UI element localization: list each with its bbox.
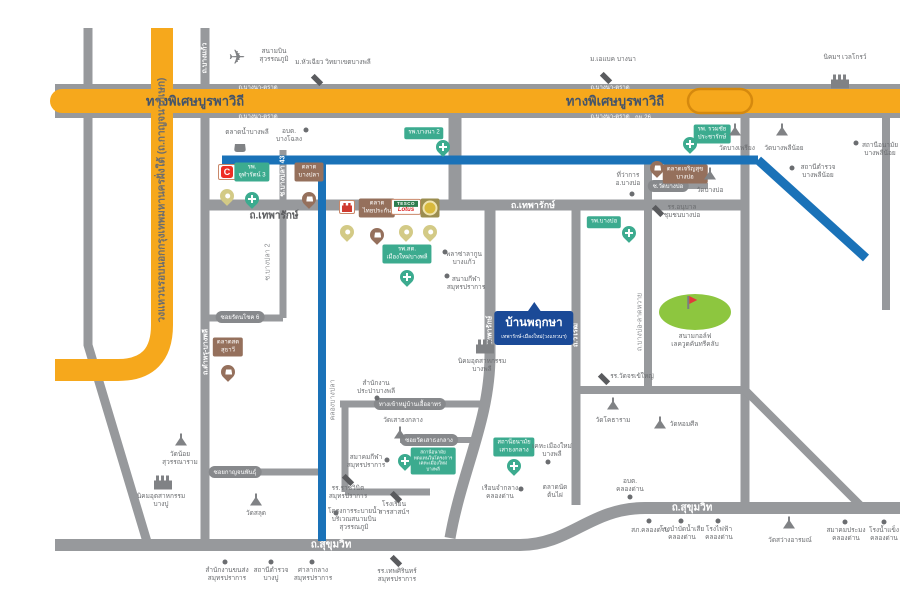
ice-factory-label: โรงน้ำแข็ง คลองด่าน xyxy=(869,527,899,543)
anuban-bangbo-label: รร.อนุบาล ชุมชนบางบ่อ xyxy=(664,204,701,220)
fishery-assoc-label: สมาคมประมง คลองด่าน xyxy=(826,527,865,543)
thepsirin-school-label: รร.เทพศิรินทร์ สมุทรปราการ xyxy=(377,568,416,584)
bangbo-hospital-sign: รพ.บางบ่อ xyxy=(587,216,621,228)
obt-bangchalong-label: อบต. บางโฉลง xyxy=(276,128,302,144)
ring-road-label: วงแหวนรอบนอกกรุงเทพมหานครฝั่งใต้ (ถ.กาญจ… xyxy=(155,78,170,323)
gold-emblem-sign xyxy=(421,199,440,218)
suthawi-market-sign: ตลาดสด สุธาวี xyxy=(213,338,243,357)
rachwinit-school-label: รร.ราชวินิต สมุทรปราการ xyxy=(329,485,367,501)
sarasas-school-label: โรงเรียน สารสาสน์ฯ xyxy=(379,501,410,517)
wat-bangbo-label: วัดบางบ่อ xyxy=(697,187,724,195)
poi-dot xyxy=(679,519,684,524)
basket-icon xyxy=(374,233,381,238)
obt-khlongdan-label: อบต. คลองด่าน xyxy=(616,478,644,494)
thepharak-label-dark: ถ.เทพารักษ์ xyxy=(249,209,298,224)
floating-market-label: ตลาดน้ำบางพลี xyxy=(225,129,268,137)
temple-icon xyxy=(776,124,788,137)
temple-icon xyxy=(704,168,716,181)
prison-label: เรือนจำกลาง คลองด่าน xyxy=(482,485,518,501)
wat-salut-label: วัดสลุด xyxy=(246,510,266,518)
police-bangpu-label: สถานีตำรวจ บางปู xyxy=(254,567,289,583)
tesco-logo: TESCO xyxy=(394,201,418,207)
kheha-muangmai-label: เคหะเมืองใหม่ บางพลี xyxy=(532,443,572,459)
factory-icon xyxy=(154,481,172,490)
temple-icon xyxy=(394,427,406,440)
rpst-muangmai-sign: รพ.สต. เมืองใหม่บางพลี xyxy=(382,245,431,264)
bangkaeo-road-label: ถ.บางแก้ว xyxy=(200,43,211,74)
soi-bangpla43-label: ซ.บางปลา 43 xyxy=(278,156,289,197)
bangna-trat-label: ถ.บางนา-ตราด xyxy=(238,111,277,121)
cross-icon xyxy=(439,143,447,151)
wat-bangphlinoi-label: วัดบางพลีน้อย xyxy=(764,145,803,153)
temple-icon xyxy=(250,494,262,507)
project-title: บ้านพฤกษา xyxy=(501,314,566,332)
city-hall-label: ศาลากลาง สมุทรปราการ xyxy=(294,567,332,583)
cross-icon xyxy=(401,457,409,465)
cross-icon xyxy=(248,195,256,203)
poi-dot xyxy=(269,560,274,565)
wellgrow-estate-label: นิคมฯ เวลโกรว์ xyxy=(824,54,867,62)
basket-icon xyxy=(225,370,232,375)
dot-icon xyxy=(345,230,350,235)
ring-road-kanchanaphisek xyxy=(55,28,162,370)
airplane-icon: ✈ xyxy=(229,45,246,69)
school-chorakhe-label: รร.วัดจรเข้ใหญ่ xyxy=(610,373,654,381)
charoensuk-market-sign: ตลาดเจริญสุข บางบ่อ xyxy=(663,165,708,184)
sukhumvit-label-west: ถ.สุขุมวิท xyxy=(311,538,352,553)
poi-dot xyxy=(716,519,721,524)
bangna2-hospital-sign: รพ.บางนา 2 xyxy=(404,127,443,139)
ruamchai-hospital-sign: รพ. รวมชัย ประชารักษ์ xyxy=(694,125,731,144)
project-callout: บ้านพฤกษา เทพารักษ์-เมืองใหม่(วงแหวนฯ) xyxy=(494,311,573,345)
wat-noi-label: วัดน้อย สุวรรณาราม xyxy=(162,451,198,467)
cross-icon xyxy=(403,273,411,281)
dot-icon xyxy=(404,230,409,235)
bangna-trat-label: ถ.บางนา-ตราด xyxy=(590,82,629,92)
cross-icon xyxy=(625,229,633,237)
abac-bangna-label: ม.เอแบค บางนา xyxy=(590,56,636,64)
anamai-bangphlinoi-label: สถานีอนามัย บางพลีน้อย xyxy=(862,142,898,158)
poi-dot xyxy=(223,560,228,565)
road-network xyxy=(0,0,900,600)
soi-rattanachok-pill: ซอยรัตนโชค 6 xyxy=(216,311,265,323)
thaiprakan-market-sign: ตลาด ไทยประกัน xyxy=(359,199,395,218)
poi-dot xyxy=(882,520,887,525)
taladnat-label: ตลาดนัด ต้นไผ่ xyxy=(543,484,568,500)
poi-dot xyxy=(647,519,652,524)
dot-icon xyxy=(225,194,230,199)
poi-dot xyxy=(630,192,635,197)
wastewater-label: โรงบำบัดน้ำเสีย คลองด่าน xyxy=(660,526,704,542)
drainage-project-label: โครงการระบายน้ำ บริเวณสนามบิน สุวรรณภูมิ xyxy=(328,508,380,532)
dot-icon xyxy=(428,230,433,235)
plaza-lagoon-label: พลาซ่าลากูน บางแก้ว xyxy=(446,251,482,267)
shrine-logo-sign xyxy=(339,200,355,214)
poi-dot xyxy=(546,460,551,465)
soi-saothongklang-pill: ซอยวัดเสาธงกลาง xyxy=(400,434,458,446)
wat-bangphriang-label: วัดบางเพรียง xyxy=(719,145,755,153)
wat-khotharam-label: วัดโคธาราม xyxy=(596,417,631,425)
poi-dot xyxy=(790,166,795,171)
poi-dot xyxy=(385,458,390,463)
poi-dot xyxy=(843,520,848,525)
waterworks-label: สำนักงาน ประปาบางพลี xyxy=(357,380,395,396)
nikhom-bangpu-label: นิคมอุตสาหกรรม บางปู xyxy=(137,493,185,509)
temple-icon xyxy=(783,517,795,530)
suvarnabhumi-airport-label: สนามบิน สุวรรณภูมิ xyxy=(259,48,288,64)
transport-office-label: สำนักงานขนส่ง สมุทรปราการ xyxy=(205,567,248,583)
big-c-logo: C xyxy=(221,166,233,178)
basket-icon xyxy=(306,197,313,202)
bangpla-market-sign: ตลาด บางปลา xyxy=(295,163,324,182)
factory-icon xyxy=(476,345,494,354)
poi-dot xyxy=(310,560,315,565)
sukhumvit-label-east: ถ.สุขุมวิท xyxy=(672,501,713,516)
anamai-kheha-sign: สถานีอนามัย ทดแทนในโครงการ เคหะเมืองใหม่… xyxy=(411,448,456,475)
police-bangphlinoi-label: สถานีตำรวจ บางพลีน้อย xyxy=(801,164,836,180)
khlong-bangpla-label: คลองบางปลา xyxy=(328,379,339,420)
poi-dot xyxy=(519,487,524,492)
thepharak-label-white: ถ.เทพารักษ์ xyxy=(511,198,555,212)
tesco-lotus-sign: TESCO Lotus xyxy=(391,199,421,215)
nikhom-bangphli-label: นิคมอุตสาหกรรม บางพลี xyxy=(458,358,506,374)
tamru-road-label: ถ.ตำหรุ-บางพลี xyxy=(201,329,212,375)
cross-icon xyxy=(510,462,518,470)
golf-flag-icon xyxy=(687,296,689,309)
bangna-trat-label: ถ.บางนา-ตราด xyxy=(238,82,277,92)
amphoe-bangbo-label: ที่ว่าการ อ.บางบ่อ xyxy=(616,172,641,188)
temple-icon xyxy=(175,434,187,447)
temple-icon xyxy=(654,417,666,430)
sports-assoc-label: สมาคมกีฬา สมุทรปราการ xyxy=(347,454,385,470)
soi-bangpla2-label: ซ.บางปลา 2 xyxy=(263,244,274,281)
anamai-saothongklang-sign: สถานีอนามัย เสาธงกลาง xyxy=(493,438,534,457)
bangbo-latwai-label: ถ.บางบ่อ-ลาดหวาย xyxy=(635,293,646,351)
poi-dot xyxy=(854,141,859,146)
uea-access-pill: ทางเข้าหมู่บ้านเอื้ออาทร xyxy=(374,398,446,410)
chularat3-hospital-sign: รพ. จุฬารัตน์ 3 xyxy=(234,163,269,182)
wat-sawang-label: วัดสว่างอารมณ์ xyxy=(768,537,812,545)
cross-icon xyxy=(686,140,694,148)
factory-icon xyxy=(831,80,849,89)
huachiew-university-label: ม.หัวเฉียว วิทยาเขตบางพลี xyxy=(295,59,370,67)
poi-dot xyxy=(304,128,309,133)
golf-course-label: สนามกอล์ฟ เลควูดคันทรีคลับ xyxy=(671,333,718,349)
expressway-uturn-loop xyxy=(688,89,752,113)
expressway-label-east: ทางพิเศษบูรพาวิถี xyxy=(566,91,664,112)
red-castle-icon xyxy=(342,203,352,212)
stadium-label: สนามกีฬา สมุทรปราการ xyxy=(447,276,485,292)
poi-dot xyxy=(375,396,380,401)
powerplant-label: โรงไฟฟ้า คลองด่าน xyxy=(705,526,733,542)
wat-saothongklang-label: วัดเสาธงกลาง xyxy=(383,417,423,425)
project-subtitle: เทพารักษ์-เมืองใหม่(วงแหวนฯ) xyxy=(501,333,566,341)
poi-dot xyxy=(628,495,633,500)
temple-icon xyxy=(607,398,619,411)
gold-coin-icon xyxy=(423,201,438,216)
wat-homsin-label: วัดหอมศีล xyxy=(670,421,698,429)
km26-marker: กม.26 xyxy=(635,112,651,122)
temple-icon xyxy=(729,124,741,137)
market-basket-icon xyxy=(234,144,246,152)
basket-icon xyxy=(654,166,661,171)
location-map: ทางพิเศษบูรพาวิถี ทางพิเศษบูรพาวิถี ถ.บา… xyxy=(0,0,900,600)
road-east-diagonal xyxy=(745,390,862,507)
bangna-trat-label: ถ.บางนา-ตราด xyxy=(590,111,629,121)
big-c-sign: C xyxy=(218,164,236,180)
soi-kanchanaphan-pill: ซอยกาญจนพันธุ์ xyxy=(209,466,262,478)
lotus-logo: Lotus xyxy=(394,207,418,214)
